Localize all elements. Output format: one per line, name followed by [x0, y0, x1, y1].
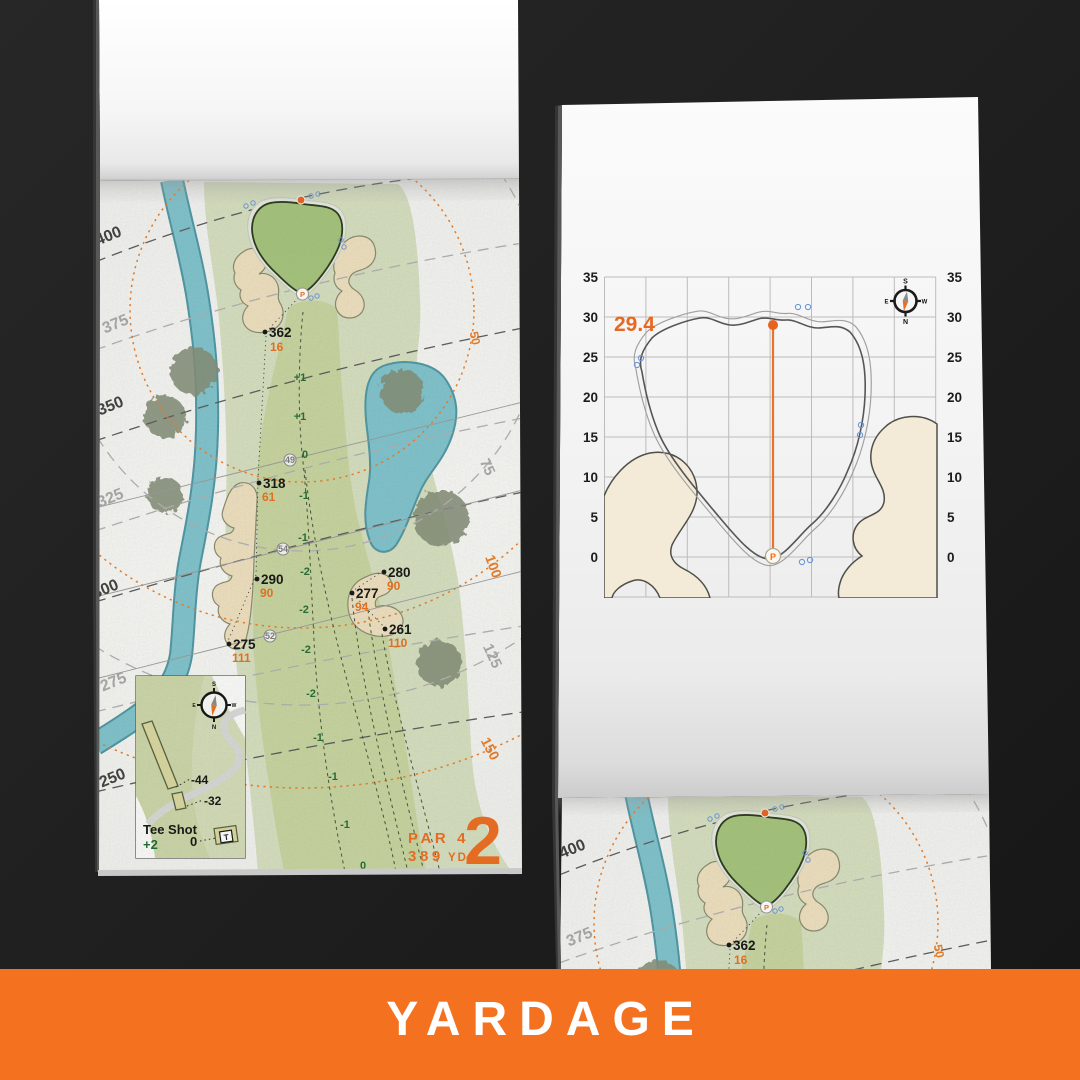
svg-text:35: 35 [947, 270, 963, 285]
svg-text:0: 0 [590, 550, 598, 565]
svg-text:30: 30 [583, 310, 598, 325]
svg-text:N: N [903, 319, 908, 326]
svg-text:15: 15 [583, 430, 599, 445]
svg-text:E: E [884, 300, 888, 306]
svg-text:10: 10 [583, 470, 598, 485]
svg-text:5: 5 [590, 510, 598, 525]
svg-text:30: 30 [947, 310, 962, 325]
svg-text:25: 25 [947, 350, 963, 365]
svg-text:5: 5 [947, 510, 955, 525]
svg-text:35: 35 [583, 270, 599, 285]
svg-text:W: W [922, 300, 928, 306]
svg-text:25: 25 [583, 350, 599, 365]
svg-text:20: 20 [947, 390, 962, 405]
svg-text:20: 20 [583, 390, 598, 405]
svg-text:P: P [770, 552, 776, 562]
svg-text:29.4: 29.4 [614, 313, 655, 336]
svg-text:15: 15 [947, 430, 963, 445]
svg-text:0: 0 [947, 550, 955, 565]
svg-text:S: S [903, 279, 908, 286]
svg-text:10: 10 [947, 470, 962, 485]
svg-text:YARDAGE: YARDAGE [386, 993, 706, 1046]
